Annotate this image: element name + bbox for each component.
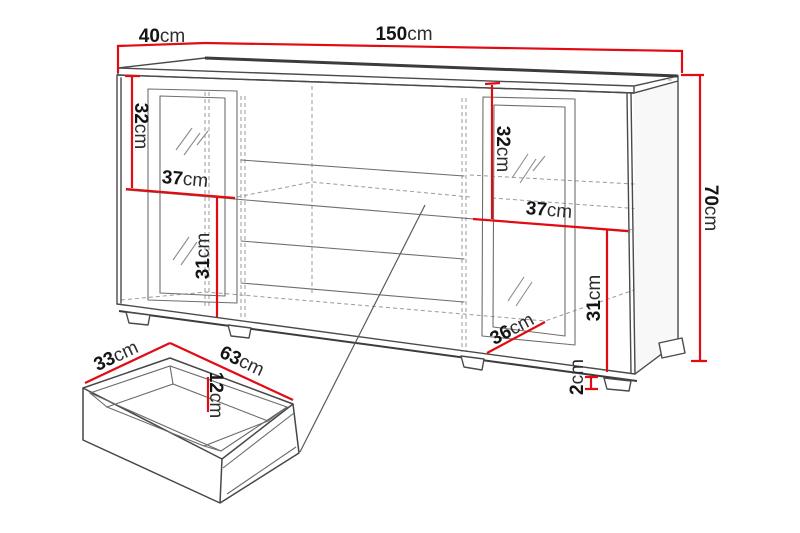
label-right-lower-height: 31cm bbox=[584, 275, 605, 321]
label-cabinet-height: 70cm bbox=[701, 185, 722, 231]
label-base-depth: 36cm bbox=[487, 309, 538, 349]
label-right-upper-height: 32cm bbox=[493, 126, 514, 172]
top-slab bbox=[118, 58, 678, 93]
dim-line-left-shelf-width bbox=[126, 189, 235, 198]
foot-front-far-right bbox=[604, 378, 631, 391]
right-side-face bbox=[634, 81, 678, 374]
right-front-edge bbox=[627, 93, 635, 374]
bottom-front-edge bbox=[117, 304, 635, 374]
left-partition-dashed bbox=[241, 96, 245, 318]
foot-front-right bbox=[461, 356, 484, 370]
label-left-shelf-width: 37cm bbox=[161, 167, 209, 192]
diagram-svg: 40cm 150cm 70cm 32cm 37cm 31cm 32cm 37cm… bbox=[0, 0, 800, 533]
drawer-callout-line bbox=[300, 205, 425, 452]
glass-reflection-hatch bbox=[508, 154, 545, 306]
foot-front-center bbox=[228, 325, 251, 338]
left-front-edge bbox=[117, 75, 121, 304]
label-foot-height: 2cm bbox=[567, 359, 588, 395]
left-shelf-back-edge-dashed bbox=[237, 182, 470, 197]
cabinet-drawing bbox=[117, 58, 685, 391]
label-drawer-height: 12cm bbox=[206, 372, 227, 418]
label-cabinet-width: 150cm bbox=[375, 24, 432, 45]
drawer-silhouette bbox=[83, 358, 299, 503]
label-left-lower-height: 31cm bbox=[193, 233, 214, 279]
label-cabinet-depth: 40cm bbox=[139, 26, 185, 47]
label-left-upper-height: 32cm bbox=[131, 103, 152, 149]
label-right-shelf-width: 37cm bbox=[525, 198, 573, 223]
drawer-detail-drawing bbox=[83, 358, 299, 503]
dim-line-right-shelf-width bbox=[473, 219, 628, 231]
dimension-lines bbox=[85, 43, 707, 412]
foot-front-left bbox=[126, 312, 150, 325]
cabinet-body bbox=[117, 58, 679, 381]
furniture-dimension-diagram: 40cm 150cm 70cm 32cm 37cm 31cm 32cm 37cm… bbox=[0, 0, 800, 533]
